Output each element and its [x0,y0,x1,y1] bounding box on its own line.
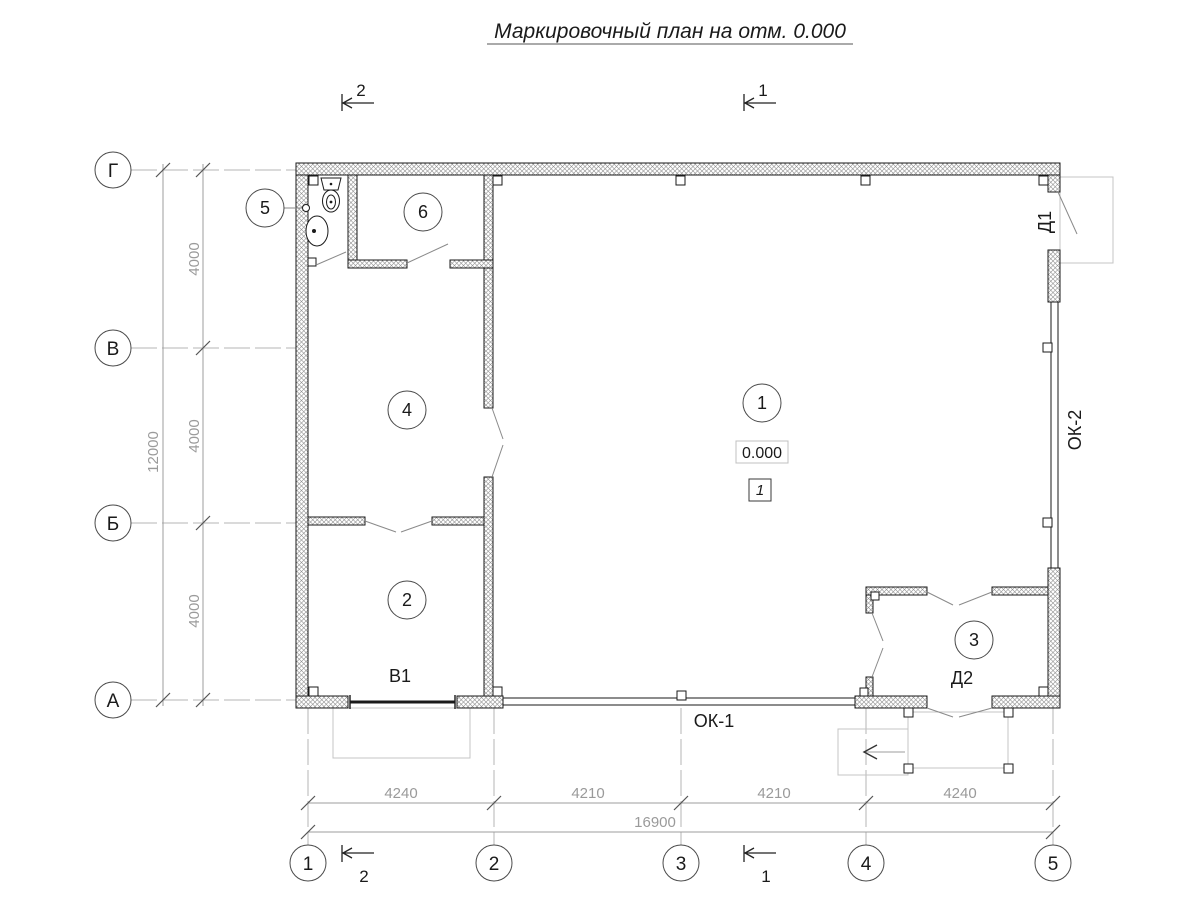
wall-right-bottom [1048,568,1060,708]
room-number-6: 6 [418,202,428,222]
pilaster [676,176,685,185]
room-number-3: 3 [969,630,979,650]
window-ok2 [1051,302,1058,568]
axis-label-v: В [107,339,120,360]
wall-bottom-left [296,696,348,708]
porch-column [904,764,913,773]
room5-leader-end [303,205,310,212]
axis-label-3: 3 [676,854,687,875]
door-swing-tambour-left [872,613,883,641]
door-swing-axisB [365,521,396,532]
section-label-top-2: 2 [356,81,365,100]
elevation-value: 0.000 [742,445,782,462]
door-d1-landing [1060,177,1113,263]
toilet-dot [330,201,333,204]
label-door-d2: Д2 [951,668,973,688]
partition-wc [348,175,357,260]
porch-column [1004,764,1013,773]
dim-bottom-1: 4240 [384,785,417,802]
pilaster [309,687,318,696]
dimension-texts: 4000 4000 4000 12000 4240 4210 4210 4240… [145,242,977,831]
wc-fixtures [306,178,341,246]
porch-outline [908,712,1008,768]
axis-label-a: А [107,691,120,712]
partition-axisB-a [308,517,365,525]
room-number-5: 5 [260,198,270,218]
pilaster [493,176,502,185]
tambour-wall-b [992,587,1048,595]
pilaster [871,592,879,600]
dim-bottom-3: 4210 [757,785,790,802]
axis-bubbles-left: Г В Б А [95,152,131,718]
dim-left-2: 4000 [186,419,203,452]
axis-label-2: 2 [489,854,500,875]
axis-label-b: Б [107,514,119,535]
label-gate-v1: В1 [389,666,411,686]
partition-room6-a [348,260,407,268]
gate-apron [333,708,470,758]
dim-bottom-2: 4210 [571,785,604,802]
floor-plan-drawing: Маркировочный план на отм. 0.000 400 [0,0,1200,900]
window-mullion [1043,518,1052,527]
sink-drain-dot [312,229,316,233]
gate-v1 [350,695,455,709]
toilet-tank-dot [330,183,333,186]
dim-bottom-total: 16900 [634,814,676,831]
room-number-1: 1 [757,393,767,413]
floor-plan-page: Маркировочный план на отм. 0.000 400 [0,0,1200,900]
label-window-ok2: ОК-2 [1065,410,1085,451]
door-swing-d1 [1058,192,1077,234]
axis-bubbles-bottom: 1 2 3 4 5 [290,845,1071,881]
door-jamb-wc [308,258,316,266]
pilaster [860,688,868,696]
pilaster [493,687,502,696]
partition-room6-b [450,260,493,268]
dim-bottom-4: 4240 [943,785,976,802]
wall-top [296,163,1060,175]
section-label-bottom-2: 2 [359,867,368,886]
sink-icon [306,216,328,246]
dim-left-3: 4000 [186,594,203,627]
dim-left-1: 4000 [186,242,203,275]
door-swing-tambour-top [927,592,953,605]
dim-left-total: 12000 [145,431,162,473]
wall-right-mid [1048,250,1060,302]
door-swing-axisB [401,521,432,532]
detail-ref-value: 1 [756,482,764,499]
partition-axisB-b [432,517,484,525]
window-mullion [677,691,686,700]
wall-right-top [1048,175,1060,192]
pilaster [1039,687,1048,696]
room-number-4: 4 [402,400,412,420]
walls [296,163,1060,708]
door-swing-wc [316,252,346,265]
axis-label-g: Г [108,161,118,182]
porch-column [904,708,913,717]
axis-grid [131,170,1053,845]
pilaster [861,176,870,185]
wall-bottom-pier1 [457,696,503,708]
room-number-2: 2 [402,590,412,610]
pilaster [309,176,318,185]
wall-bottom-right [992,696,1060,708]
door-swing-axis2 [492,408,503,439]
wall-bottom-pier2 [855,696,927,708]
partition-axis2-upper [484,175,493,408]
dimension-lines [156,163,1060,839]
door-swing-tambour-top [959,592,992,605]
porch-column [1004,708,1013,717]
label-door-d1: Д1 [1035,211,1055,233]
axis-label-5: 5 [1048,854,1059,875]
door-swing-axis2 [492,445,503,477]
door-swing-room6 [407,244,448,263]
label-window-ok1: ОК-1 [694,711,735,731]
door-swing-tambour-left [872,648,883,677]
axis-label-1: 1 [303,854,314,875]
pilaster [1039,176,1048,185]
section-label-bottom-1: 1 [761,867,770,886]
partition-axis2-lower [484,477,493,696]
section-label-top-1: 1 [758,81,767,100]
wall-left [296,175,308,708]
page-title: Маркировочный план на отм. 0.000 [494,20,846,43]
pilasters [308,176,1052,700]
axis-label-4: 4 [861,854,872,875]
window-mullion [1043,343,1052,352]
